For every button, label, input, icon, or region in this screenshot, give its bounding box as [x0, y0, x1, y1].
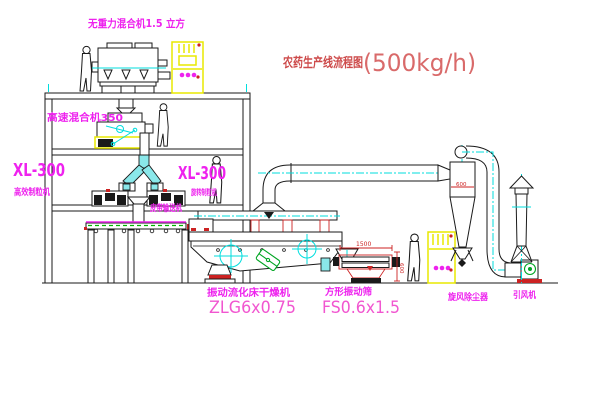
label-top-mixer: 无重力混合机1.5 立方: [87, 17, 185, 30]
knob-icon: [192, 73, 197, 78]
zero-gravity-mixer: [92, 43, 170, 93]
control-cabinet-2: [428, 232, 455, 283]
dim-cyclone-diameter: 600: [456, 182, 467, 188]
label-floor2-mixer: 高速混合机350: [47, 111, 123, 124]
belt-conveyor: [84, 222, 193, 283]
label-screen-name: 方形振动筛: [325, 286, 372, 298]
cad-drawing-canvas: 农药生产线流程图 (500kg/h) 无重力混合机1.5 立方 高速混合机350…: [0, 0, 600, 403]
knob-icon: [180, 73, 185, 78]
conveyor-leg: [182, 230, 188, 283]
dim-screen-height: 600: [398, 263, 404, 274]
label-granulator-left-name: 高效制粒机: [14, 186, 50, 198]
dryer-foot: [208, 265, 231, 275]
label-cyclone: 旋风除尘器: [447, 291, 489, 303]
conveyor-leg: [128, 230, 134, 283]
control-cabinet-1: [172, 42, 203, 93]
label-dryer-model: ZLG6x0.75: [209, 298, 296, 318]
label-screen-model: FS0.6x1.5: [322, 298, 400, 318]
cyclone-separator: [450, 145, 475, 267]
page-title-capacity: (500kg/h): [363, 49, 476, 77]
dryer-discharge: [321, 258, 330, 271]
vibrating-screen: [333, 245, 400, 283]
page-title: 农药生产线流程图: [282, 55, 363, 71]
dim-screen-length: 1500: [356, 241, 371, 248]
worker-figure: [157, 104, 168, 146]
conveyor-leg: [88, 230, 94, 283]
fluid-bed-dryer: [189, 219, 342, 283]
induced-draft-fan: [505, 260, 542, 283]
conveyor-leg: [108, 230, 114, 283]
worker-figure: [408, 234, 420, 281]
knob-icon: [440, 266, 445, 271]
roof-slab: [45, 93, 250, 99]
label-fan: 引风机: [513, 289, 536, 301]
process-flow-diagram: 农药生产线流程图 (500kg/h) 无重力混合机1.5 立方 高速混合机350…: [0, 0, 600, 403]
granulator-left: [92, 189, 128, 206]
label-granulator-right-name: 旋转制粒机: [190, 187, 217, 197]
label-granulator-right-model: XL-300: [178, 163, 226, 184]
worker-figure: [80, 46, 92, 91]
label-belt-conveyor: 皮带输送机: [149, 202, 182, 214]
exhaust-duct: [258, 163, 450, 203]
label-granulator-left-model: XL-300: [13, 160, 65, 181]
knob-icon: [434, 266, 439, 271]
knob-icon: [186, 73, 191, 78]
